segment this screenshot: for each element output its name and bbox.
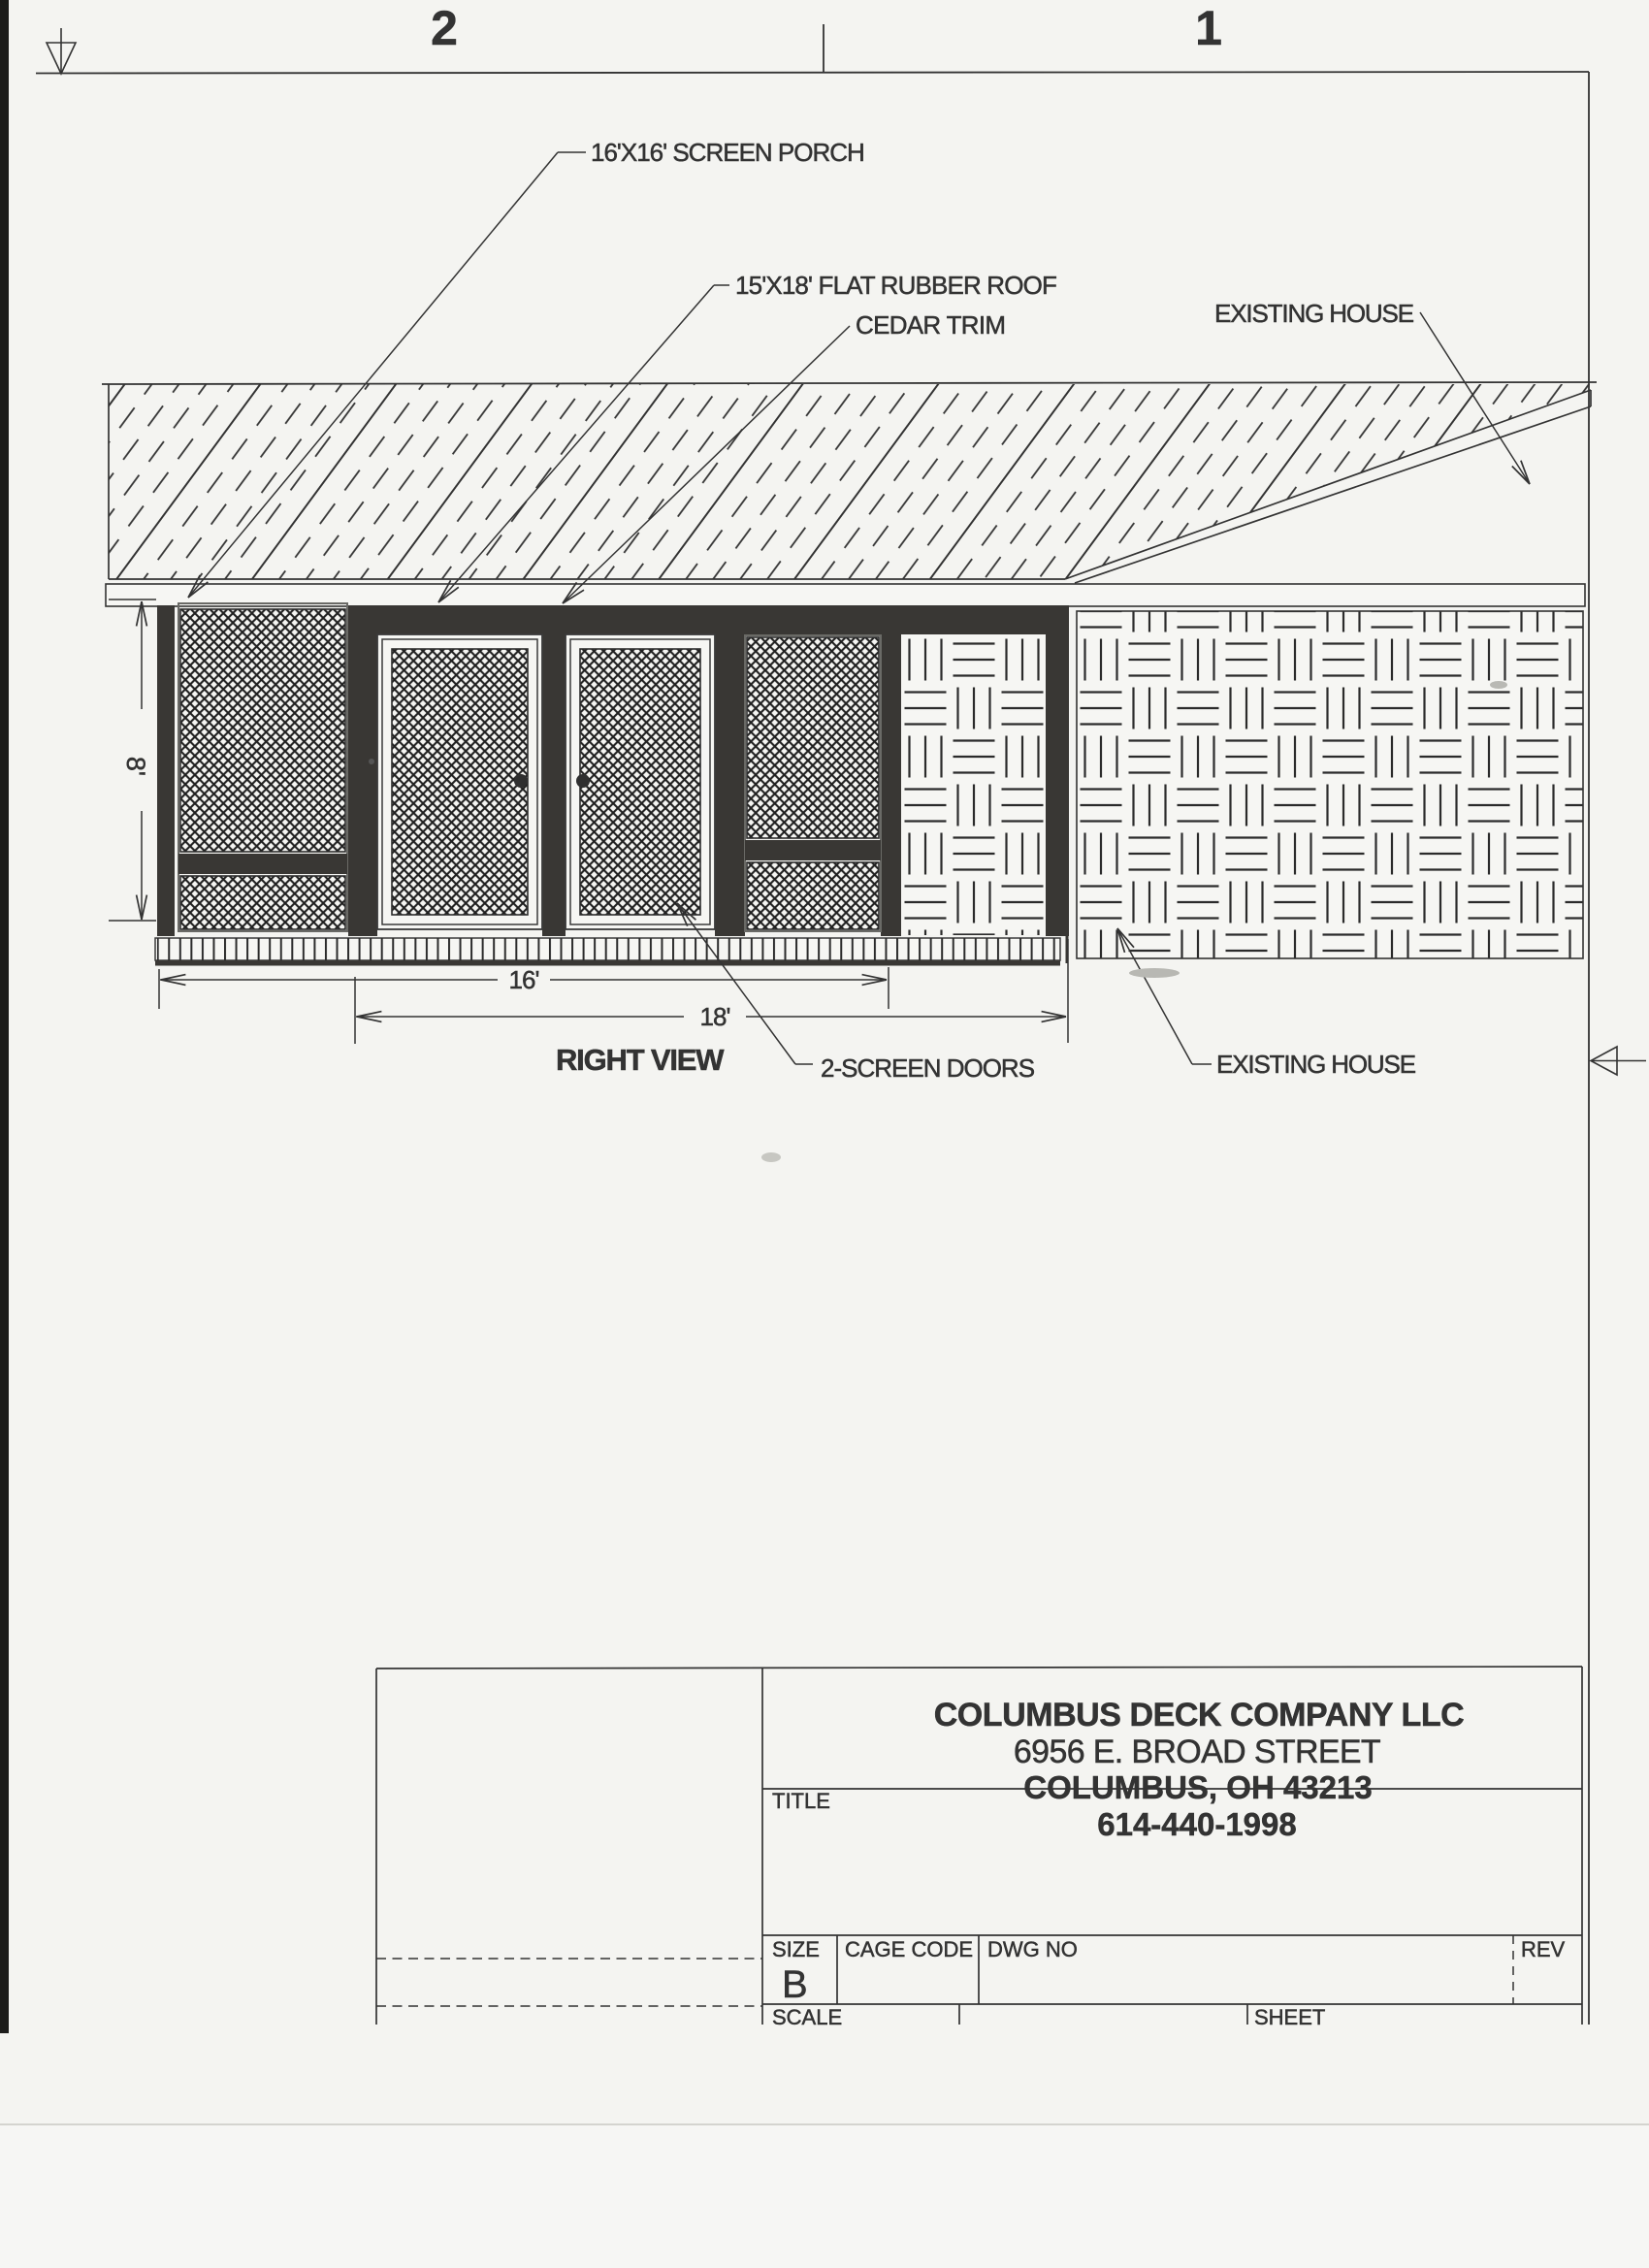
svg-text:2: 2 <box>431 1 458 55</box>
svg-text:8': 8' <box>121 757 150 776</box>
svg-text:614-440-1998: 614-440-1998 <box>1097 1806 1297 1842</box>
svg-text:1: 1 <box>1195 1 1222 55</box>
svg-text:CEDAR TRIM: CEDAR TRIM <box>856 310 1005 340</box>
svg-text:TITLE: TITLE <box>772 1789 830 1813</box>
svg-text:16'X16' SCREEN PORCH: 16'X16' SCREEN PORCH <box>591 138 864 167</box>
svg-text:2-SCREEN DOORS: 2-SCREEN DOORS <box>821 1053 1035 1083</box>
svg-text:COLUMBUS DECK COMPANY LLC: COLUMBUS DECK COMPANY LLC <box>934 1697 1465 1733</box>
svg-text:RIGHT VIEW: RIGHT VIEW <box>556 1043 725 1077</box>
svg-text:CAGE CODE: CAGE CODE <box>845 1937 973 1961</box>
svg-text:6956 E. BROAD STREET: 6956 E. BROAD STREET <box>1014 1733 1380 1770</box>
svg-text:B: B <box>782 1963 808 2006</box>
svg-text:SHEET: SHEET <box>1254 2005 1325 2029</box>
svg-text:SIZE: SIZE <box>772 1937 820 1961</box>
svg-text:EXISTING HOUSE: EXISTING HOUSE <box>1214 299 1414 328</box>
svg-text:SCALE: SCALE <box>772 2005 842 2029</box>
svg-text:REV: REV <box>1521 1937 1566 1961</box>
svg-text:15'X18' FLAT RUBBER ROOF: 15'X18' FLAT RUBBER ROOF <box>735 271 1056 300</box>
svg-text:COLUMBUS, OH 43213: COLUMBUS, OH 43213 <box>1023 1769 1372 1805</box>
svg-text:16': 16' <box>509 965 539 994</box>
svg-text:18': 18' <box>700 1002 730 1031</box>
svg-text:EXISTING HOUSE: EXISTING HOUSE <box>1216 1050 1416 1079</box>
svg-text:DWG NO: DWG NO <box>987 1937 1078 1961</box>
